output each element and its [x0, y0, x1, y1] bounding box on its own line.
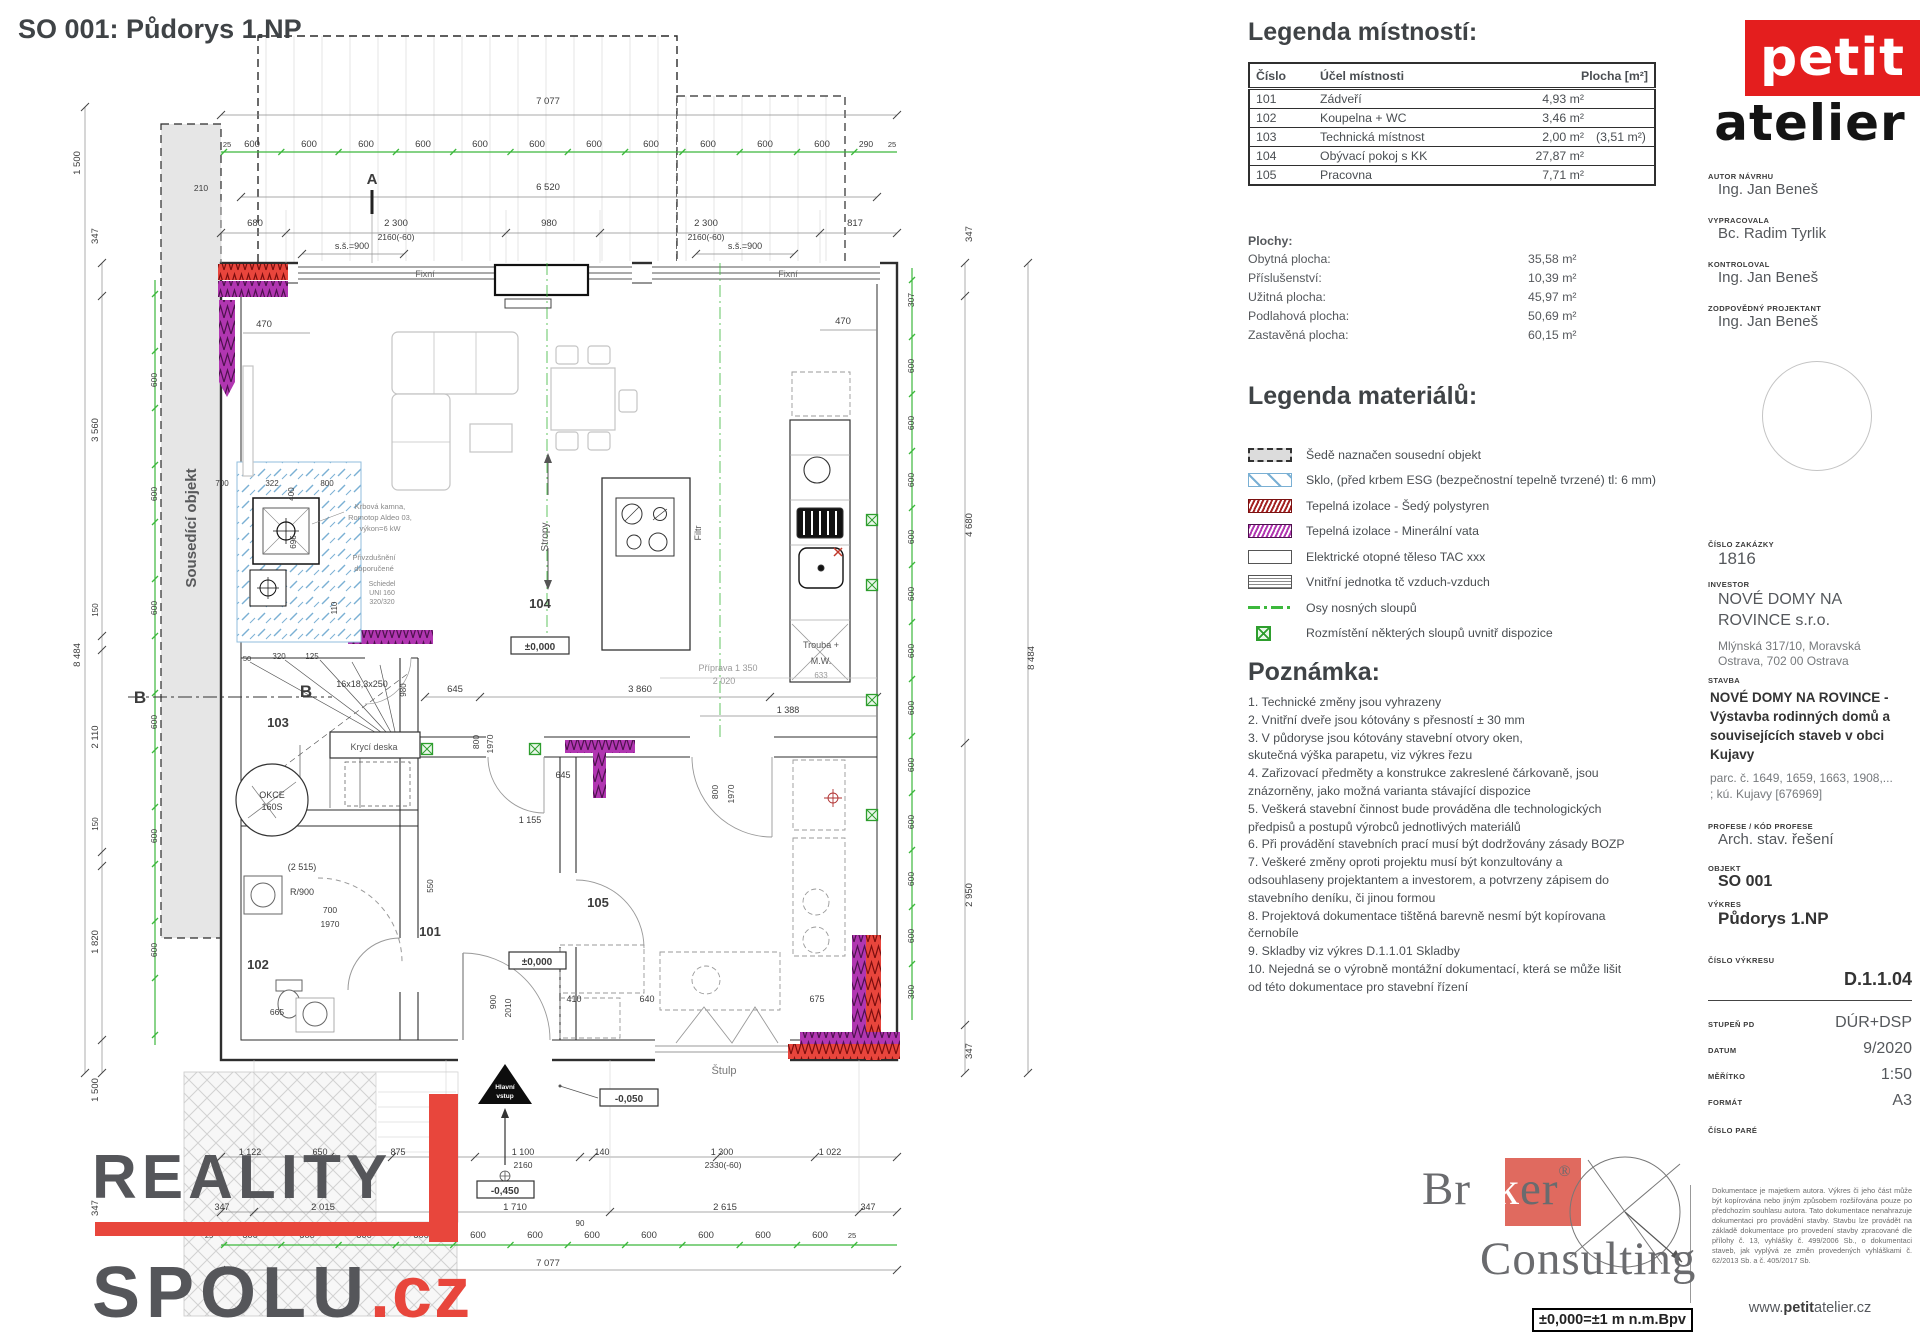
legend-item: Tepelná izolace - Šedý polystyren	[1248, 493, 1660, 519]
plan-dim-label: 875	[390, 1147, 405, 1157]
date-value: 9/2020	[1863, 1040, 1912, 1058]
area-row: Podlahová plocha:50,69 m²	[1248, 309, 1656, 328]
plan-dim-label: 125	[305, 652, 319, 661]
investor-address: Ostrava, 702 00 Ostrava	[1718, 654, 1861, 669]
note-line: 8. Projektová dokumentace tištěná barevn…	[1248, 908, 1660, 926]
reality-spolu-logo: REALITY	[92, 1142, 392, 1213]
reality-cz-suffix: .cz	[370, 1253, 472, 1333]
plan-dim-label: 3 860	[628, 684, 652, 695]
plan-dim-label: 600	[586, 139, 602, 150]
plan-dim-label: 1 710	[503, 1202, 527, 1213]
plan-dim-label: Romotop Aldeo 03,	[348, 513, 412, 522]
plan-dim-label: výkon=6 kW	[359, 524, 401, 533]
drawing-sheet: 7 0772106 520256006006006006006006006006…	[0, 0, 1920, 1333]
plan-dim-label: 25	[223, 140, 231, 149]
plan-dim-label: 600	[470, 1230, 486, 1241]
date-label: DATUM	[1708, 1046, 1737, 1055]
plan-dim-label: 101	[419, 924, 441, 939]
note-line: 6. Při provádění stavebních prací musí b…	[1248, 836, 1660, 854]
plan-dim-label: 600	[906, 530, 916, 544]
plan-dim-label: doporučené	[354, 564, 394, 573]
note-line: 2. Vnitřní dveře jsou kótovány s přesnos…	[1248, 712, 1660, 730]
plan-dim-label: 980	[399, 683, 408, 697]
plan-dim-label: 347	[964, 226, 975, 242]
plan-dim-label: R/900	[290, 887, 314, 897]
stage-value: DÚR+DSP	[1835, 1014, 1912, 1032]
plan-dim-label: Přivzdušnění	[352, 553, 396, 562]
plan-dim-label: 600	[149, 715, 159, 729]
drafted-label: VYPRACOVALA	[1708, 216, 1826, 225]
plan-dim-label: 307	[906, 293, 916, 307]
plan-dim-label: -0,050	[615, 1094, 644, 1105]
plan-dim-label: 1970	[726, 784, 736, 803]
plan-dim-label: Krbová kamna,	[355, 502, 405, 511]
plan-dim-label: 2330(-60)	[705, 1160, 742, 1170]
plan-dim-label: vstup	[496, 1093, 513, 1100]
plan-dim-label: 150	[91, 817, 100, 831]
plan-dim-label: 1 820	[90, 930, 101, 954]
plan-dim-label: 2 020	[713, 676, 736, 686]
table-row: 102Koupelna + WC 3,46 m²	[1249, 109, 1655, 128]
plan-dim-label: 210	[194, 183, 208, 193]
plan-dim-label: 633	[814, 671, 828, 680]
floor-plan: 7 0772106 520256006006006006006006006006…	[0, 0, 1240, 1333]
plan-dim-label: B	[300, 682, 312, 701]
plan-dim-label: 600	[698, 1230, 714, 1241]
reality-spolu-logo: SPOLU.cz	[92, 1252, 472, 1333]
plan-dim-label: 1 500	[90, 1078, 101, 1102]
plan-dim-label: 600	[906, 473, 916, 487]
legend-item: Tepelná izolace - Minerální vata	[1248, 519, 1660, 545]
room-legend-heading: Legenda místností:	[1248, 18, 1477, 47]
plan-dim-label: UNI 160	[369, 590, 395, 597]
reality-logo-red-bar-horizontal	[95, 1222, 458, 1236]
plan-dim-label: Trouba +	[803, 640, 839, 650]
plan-dim-label: 680	[247, 218, 263, 229]
plan-dim-label: 8 484	[72, 643, 83, 667]
plan-dim-label: -0,450	[491, 1186, 520, 1197]
plan-dim-label: 320	[272, 652, 286, 661]
plan-dim-label: 600	[906, 929, 916, 943]
plan-dim-label: 1970	[485, 734, 495, 753]
project-label: STAVBA	[1708, 676, 1915, 685]
plan-dim-label: 600	[529, 139, 545, 150]
note-line: 3. V půdoryse jsou kótovány stavební otv…	[1248, 730, 1660, 748]
plan-dim-label: 700	[215, 479, 229, 488]
table-row: 101Zádveří 4,93 m²	[1249, 89, 1655, 109]
plan-dim-label: 290	[859, 139, 873, 149]
plan-dim-label: 4 680	[964, 513, 975, 537]
plan-dim-label: Fixní	[415, 269, 435, 279]
plan-dim-label: 160S	[261, 802, 282, 812]
plan-dim-label: 696	[289, 535, 298, 549]
format-value: A3	[1892, 1092, 1912, 1110]
plan-dim-label: 300	[906, 985, 916, 999]
plan-dim-label: A	[367, 171, 378, 188]
plan-dim-label: 2 615	[713, 1202, 737, 1213]
responsible-value: Ing. Jan Beneš	[1718, 313, 1821, 330]
plan-dim-label: 470	[835, 316, 851, 327]
plan-dim-label: 600	[149, 943, 159, 957]
sofa	[392, 332, 518, 394]
toilet-tank	[276, 980, 302, 991]
plan-dim-label: 2010	[503, 998, 513, 1017]
plan-dim-label: 550	[426, 879, 435, 893]
part-value: Arch. stav. řešení	[1718, 831, 1834, 848]
plan-dim-label: 600	[149, 487, 159, 501]
plan-dim-label: 102	[247, 957, 269, 972]
kitchen-island	[602, 478, 690, 650]
window-frame	[495, 265, 588, 295]
plan-dim-label: 800	[710, 785, 720, 799]
plan-dim-label: 7 077	[536, 1258, 560, 1269]
order-label: ČÍSLO ZAKÁZKY	[1708, 540, 1774, 549]
areas-heading: Plochy:	[1248, 234, 1656, 248]
plan-dim-label: 104	[529, 596, 551, 611]
washing-machine	[244, 876, 282, 914]
plan-dim-label: 600	[244, 139, 260, 150]
plan-dim-label: 600	[906, 644, 916, 658]
fireplace-area	[237, 462, 361, 642]
column-axis-swatch	[1248, 606, 1292, 609]
plan-dim-label: 347	[860, 1202, 875, 1212]
plan-dim-label: 1 022	[819, 1147, 842, 1157]
room-table: Číslo Účel místnosti Plocha [m²] 101Zádv…	[1248, 62, 1656, 186]
plan-dim-label: 2 950	[964, 883, 975, 907]
plan-dim-label: (2 515)	[288, 862, 317, 872]
note-line: 1. Technické změny jsou vyhrazeny	[1248, 694, 1660, 712]
note-line: předpisů a postupů výrobců jednotlivých …	[1248, 819, 1660, 837]
plan-dim-label: 140	[594, 1147, 609, 1157]
plan-dim-label: 600	[906, 416, 916, 430]
stage-label: STUPEŇ PD	[1708, 1020, 1755, 1029]
column-position-swatch	[1256, 626, 1271, 641]
plan-dim-label: 400	[287, 487, 296, 501]
stamp-circle	[1762, 361, 1872, 471]
plan-dim-label: 600	[757, 139, 773, 150]
glass-swatch	[1248, 473, 1292, 487]
plan-dim-label: 105	[587, 895, 609, 910]
note-line: 4. Zařizovací předměty a konstrukce zakr…	[1248, 765, 1660, 783]
responsible-label: ZODPOVĚDNÝ PROJEKTANT	[1708, 304, 1821, 313]
plan-dim-label: 600	[906, 587, 916, 601]
legend-item: Rozmístění některých sloupů uvnitř dispo…	[1248, 621, 1660, 647]
plan-dim-label: 1 300	[711, 1147, 734, 1157]
plan-dim-label: 600	[527, 1230, 543, 1241]
plan-dim-label: 600	[812, 1230, 828, 1241]
legend-item: Elektrické otopné těleso TAC xxx	[1248, 544, 1660, 570]
plan-dim-label: 675	[809, 994, 824, 1004]
plan-dim-label: 800	[471, 735, 481, 749]
plan-dim-label: 600	[301, 139, 317, 150]
page-title: SO 001: Půdorys 1.NP	[18, 14, 302, 45]
legend-item: Šedě naznačen sousední objekt	[1248, 442, 1660, 468]
plan-dim-label: 8 484	[1026, 646, 1037, 670]
plan-dim-label: Krycí deska	[350, 742, 397, 752]
plan-dim-label: 600	[814, 139, 830, 150]
plan-dim-label: 600	[358, 139, 374, 150]
table-row: 104Obývací pokoj s KK 27,87 m²	[1249, 147, 1655, 166]
plan-dim-label: 980	[541, 218, 557, 229]
scale-value: 1:50	[1881, 1066, 1912, 1084]
plan-dim-label: OKCE	[259, 790, 285, 800]
plan-dim-label: 645	[447, 684, 463, 695]
drawing-value: Půdorys 1.NP	[1718, 909, 1829, 929]
divider	[1708, 1000, 1912, 1001]
plan-dim-label: 600	[472, 139, 488, 150]
reality-logo-red-bar-vertical	[429, 1094, 458, 1242]
plan-dim-label: 6 520	[536, 182, 560, 193]
plan-dim-label: 645	[555, 770, 570, 780]
plan-dim-label: 2 300	[694, 218, 718, 229]
plan-dim-label: 600	[149, 601, 159, 615]
plan-dim-label: ±0,000	[525, 642, 556, 653]
note-line: odsouhlaseny projektantem a investorem, …	[1248, 872, 1660, 890]
plan-dim-label: ±0,000	[522, 957, 553, 968]
plan-dim-label: 600	[906, 872, 916, 886]
plan-dim-label: 800	[320, 479, 334, 488]
order-value: 1816	[1718, 549, 1774, 569]
plan-dim-label: 665	[270, 1007, 284, 1017]
scale-label: MĚŘÍTKO	[1708, 1072, 1745, 1081]
materials-list: Šedě naznačen sousední objekt Sklo, (pře…	[1248, 442, 1660, 646]
investor-label: INVESTOR	[1708, 580, 1861, 589]
plan-dim-label: 2160(-60)	[378, 232, 415, 242]
legend-item: Vnitřní jednotka tč vzduch-vzduch	[1248, 570, 1660, 596]
note-line: černobíle	[1248, 925, 1660, 943]
plan-dim-label: 347	[90, 228, 101, 244]
note-line: skutečná výška parapetu, viz výkres řezu	[1248, 747, 1660, 765]
col-number: Číslo	[1249, 63, 1314, 89]
coffee-table	[470, 424, 512, 452]
col-area: Plocha [m²]	[1506, 63, 1655, 89]
plan-dim-label: 600	[906, 758, 916, 772]
plan-dim-label: 3 560	[90, 418, 101, 442]
plan-dim-label: 2 300	[384, 218, 408, 229]
plan-dim-label: 16x18,3x250	[336, 679, 388, 689]
plan-dim-label: 2160	[514, 1160, 533, 1170]
plan-dim-label: s.š.=900	[728, 241, 762, 251]
note-line: 5. Veškerá stavební činnost bude provádě…	[1248, 801, 1660, 819]
plan-dim-label: Sousedící objekt	[183, 468, 200, 587]
plan-dim-label: 600	[700, 139, 716, 150]
plan-dim-label: 1 388	[777, 705, 800, 715]
investor-name: ROVINCE s.r.o.	[1718, 610, 1861, 631]
plan-dim-label: 2 110	[90, 725, 101, 748]
atelier-logo-text: atelier	[1700, 94, 1920, 152]
plan-dim-label: 1970	[321, 919, 340, 929]
title-block: petit atelier AUTOR NÁVRHUIng. Jan Beneš…	[1700, 0, 1920, 1333]
plan-dim-label: 320/320	[369, 599, 394, 606]
drawing-no-value: D.1.1.04	[1708, 969, 1912, 990]
plan-dim-label: 103	[267, 715, 289, 730]
plan-dim-label: 150	[91, 603, 100, 617]
format-label: FORMÁT	[1708, 1098, 1742, 1107]
plan-dim-label: 700	[323, 905, 337, 915]
petit-logo-red-box: petit	[1745, 20, 1920, 96]
plan-dim-label: 322	[265, 479, 279, 488]
plan-dim-label: 25	[888, 140, 896, 149]
legend-item: Osy nosných sloupů	[1248, 595, 1660, 621]
legend-item: Sklo, (před krbem ESG (bezpečnostní tepe…	[1248, 468, 1660, 494]
note-line: 9. Skladby viz výkres D.1.1.01 Skladby	[1248, 943, 1660, 961]
plan-dim-label: 600	[906, 815, 916, 829]
plan-dim-label: 90	[576, 1219, 585, 1228]
plan-dim-label: Filtr	[693, 526, 703, 541]
washbasin	[303, 1002, 327, 1026]
heater-swatch	[1248, 550, 1292, 564]
plan-dim-label: M.W.	[811, 656, 832, 666]
investor-name: NOVÉ DOMY NA	[1718, 589, 1861, 610]
plan-dim-label: 1 500	[72, 151, 83, 175]
plan-dim-label: Štulp	[711, 1064, 736, 1077]
author-label: AUTOR NÁVRHU	[1708, 172, 1818, 181]
drawing-no-label: ČÍSLO VÝKRESU	[1708, 956, 1912, 965]
author-value: Ing. Jan Beneš	[1718, 181, 1818, 198]
note-line: 10. Nejedná se o výrobně montážní dokume…	[1248, 961, 1660, 979]
plan-dim-label: 600	[149, 829, 159, 843]
project-parcel: parc. č. 1649, 1659, 1663, 1908,...	[1710, 770, 1915, 786]
col-purpose: Účel místnosti	[1314, 63, 1506, 89]
part-label: PROFESE / KÓD PROFESE	[1708, 822, 1834, 831]
plan-dim-label: 600	[906, 359, 916, 373]
consulting-wordmark: Consulting	[1480, 1232, 1696, 1286]
petit-logo-text: petit	[1760, 28, 1905, 88]
plan-dim-label: 410	[566, 994, 581, 1004]
plan-dim-label: 817	[847, 218, 863, 229]
project-parcel: ; kú. Kujavy [676969]	[1710, 786, 1915, 802]
drafted-value: Bc. Radim Tyrlik	[1718, 225, 1826, 242]
table-row: 103Technická místnost 2,00 m²(3,51 m²)	[1249, 128, 1655, 147]
note-line: stavebního deníku, či jinou formou	[1248, 890, 1660, 908]
dining-table	[551, 368, 615, 430]
plan-dim-label: 7 077	[536, 96, 560, 107]
checked-label: KONTROLOVAL	[1708, 260, 1818, 269]
plan-dim-label: s.š.=900	[335, 241, 369, 251]
neighbor-swatch	[1248, 448, 1292, 462]
area-row: Obytná plocha:35,58 m²	[1248, 252, 1656, 271]
plan-dim-label: 600	[643, 139, 659, 150]
plan-dim-label: B	[134, 688, 146, 707]
datum-note-box: ±0,000=±1 m n.m.Bpv	[1532, 1308, 1693, 1332]
area-row: Zastavěná plocha:60,15 m²	[1248, 328, 1656, 347]
investor-address: Mlýnská 317/10, Moravská	[1718, 639, 1861, 654]
note-line: od této dokumentace pro stavební řízení	[1248, 979, 1660, 997]
area-row: Příslušenství:10,39 m²	[1248, 271, 1656, 290]
plan-dim-label: 600	[755, 1230, 771, 1241]
areas-summary: Plochy: Obytná plocha:35,58 m² Příslušen…	[1248, 234, 1656, 347]
plan-dim-label: 600	[415, 139, 431, 150]
tv-board	[243, 366, 253, 476]
notes-heading: Poznámka:	[1248, 658, 1380, 687]
area-row: Užitná plocha:45,97 m²	[1248, 290, 1656, 309]
plan-dim-label: 900	[488, 995, 498, 1009]
plan-dim-label: 1 100	[512, 1147, 535, 1157]
plan-dim-label: 50	[243, 654, 251, 663]
materials-heading: Legenda materiálů:	[1248, 382, 1477, 411]
plan-dim-label: 640	[639, 994, 654, 1004]
drawing-label: VÝKRES	[1708, 900, 1829, 909]
plan-dim-label: Schiedel	[369, 581, 396, 588]
plan-dim-label: 470	[256, 319, 272, 330]
note-line: 7. Veškeré změny oproti projektu musí bý…	[1248, 854, 1660, 872]
plan-dim-label: Fixní	[778, 269, 798, 279]
plan-dim-label: Hlavní	[495, 1084, 515, 1091]
notes-list: 1. Technické změny jsou vyhrazeny 2. Vni…	[1248, 694, 1660, 997]
plan-dim-label: Stropy	[540, 523, 551, 552]
plan-dim-label: 25	[848, 1231, 856, 1240]
object-label: OBJEKT	[1708, 864, 1772, 873]
plan-dim-label: 600	[641, 1230, 657, 1241]
checked-value: Ing. Jan Beneš	[1718, 269, 1818, 286]
table-row: 105Pracovna 7,71 m²	[1249, 166, 1655, 186]
mineral-wool-swatch	[1248, 524, 1292, 538]
project-name: NOVÉ DOMY NA ROVINCE - Výstavba rodinnýc…	[1710, 688, 1915, 764]
plan-dim-label: Příprava 1 350	[698, 663, 757, 673]
broker-consulting-logo: Broker® Consulting	[1420, 1148, 1820, 1328]
plan-dim-label: 600	[149, 373, 159, 387]
object-value: SO 001	[1718, 873, 1772, 891]
plan-dim-label: 600	[906, 701, 916, 715]
plan-dim-label: 110	[330, 601, 339, 614]
note-line: znázorněny, jako možná varianta stávajíc…	[1248, 783, 1660, 801]
plan-dim-label: 1 155	[519, 815, 542, 825]
plan-dim-label: 600	[584, 1230, 600, 1241]
plan-dim-label: 347	[964, 1043, 975, 1059]
plan-dim-label: 2160(-60)	[688, 232, 725, 242]
hvac-unit-swatch	[1248, 575, 1292, 589]
broker-wordmark: Broker®	[1422, 1162, 1572, 1216]
polystyrene-swatch	[1248, 499, 1292, 513]
